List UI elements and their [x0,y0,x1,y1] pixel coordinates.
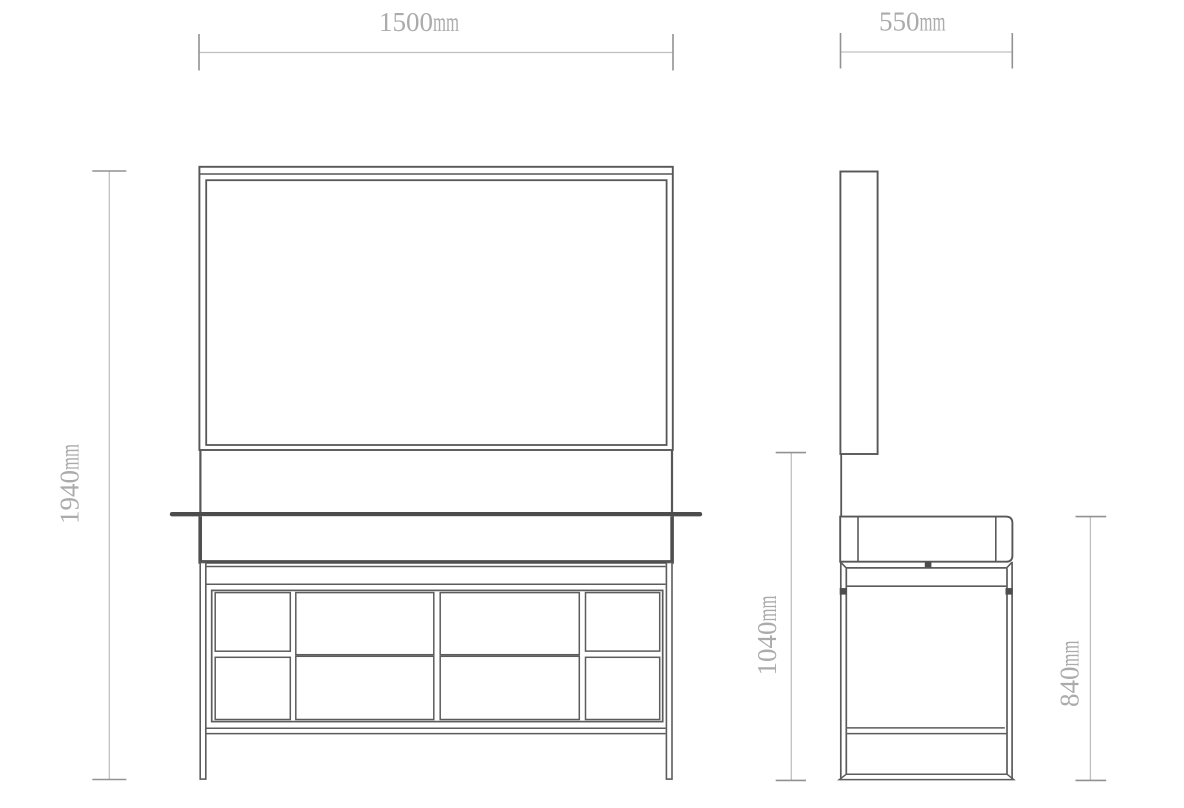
svg-text:1040mm: 1040mm [752,596,782,676]
svg-text:1500mm: 1500mm [379,7,459,37]
svg-text:840mm: 840mm [1055,641,1085,708]
svg-text:550mm: 550mm [879,7,946,37]
svg-text:1940mm: 1940mm [55,444,85,524]
